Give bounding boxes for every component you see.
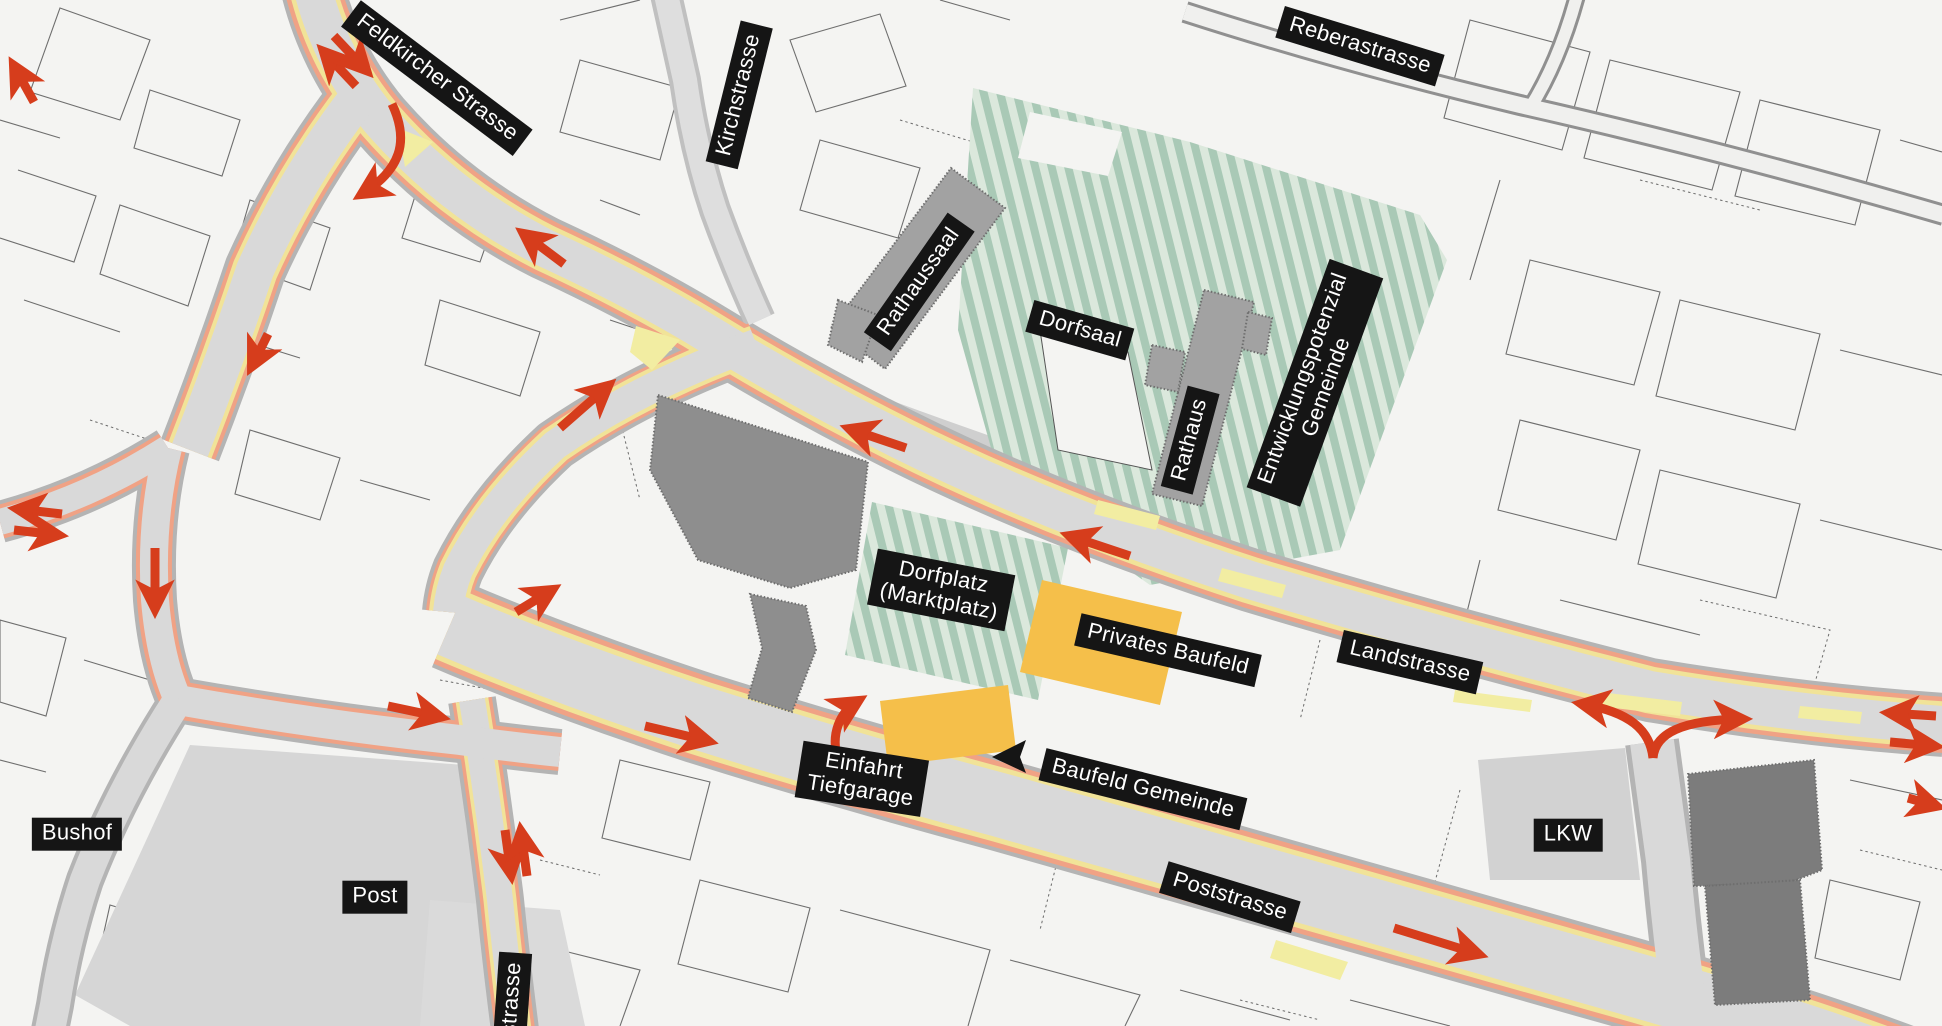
poi-label-post: Post [342, 881, 407, 914]
field-baufeld-gemeinde [880, 685, 1016, 766]
building-rathaus-wing-west [1145, 345, 1185, 392]
building-central-annex [748, 594, 816, 712]
flow-arrow-left-edge-right [14, 530, 58, 535]
flow-arrow-junction-up-right [516, 590, 552, 612]
map-canvas [0, 0, 1942, 1026]
flow-arrow-right-edge-low [1908, 798, 1936, 806]
poi-label-bushof: Bushof [32, 818, 122, 851]
flow-arrow-corner-up [14, 66, 34, 102]
street-label-fstrasse-partial: fstrasse [492, 951, 531, 1026]
building-lkw-dark-south [1705, 880, 1810, 1005]
flow-arrow-right-edge-left [1890, 713, 1936, 716]
flow-arrow-right-edge-right [1890, 742, 1934, 746]
flow-arrow-fstrasse-up [521, 832, 527, 876]
building-lkw-dark [1688, 760, 1822, 886]
poi-label-lkw: LKW [1534, 819, 1603, 852]
site-plan-map: Feldkircher Strasse Kirchstrasse Reberas… [0, 0, 1942, 1026]
flow-arrow-fstrasse-down [505, 830, 511, 874]
flow-arrow-left-edge-left [18, 509, 62, 514]
